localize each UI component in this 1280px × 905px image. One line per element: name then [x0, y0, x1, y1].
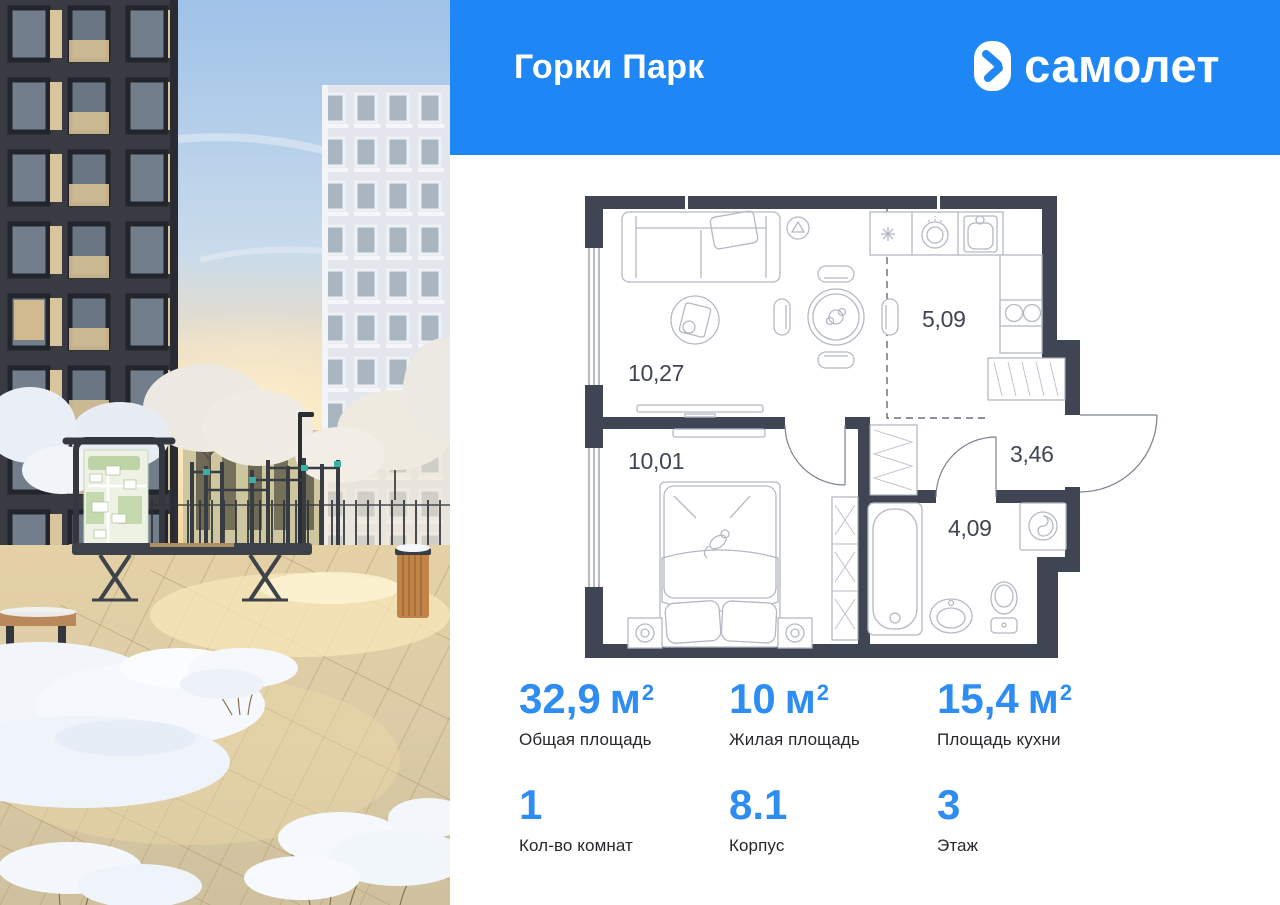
hallway-closet	[870, 425, 917, 495]
stat-value: 3	[937, 782, 1177, 828]
bedroom-door	[785, 425, 845, 485]
stats-grid: 32,9м2 Общая площадь 10м2 Жилая площадь …	[519, 676, 1177, 856]
project-title: Горки Парк	[514, 48, 705, 87]
stat-unit: м2	[785, 675, 828, 722]
room-area-label-living: 10,27	[628, 360, 684, 386]
ceiling-lamp	[787, 217, 809, 239]
stat-living-area: 10м2 Жилая площадь	[729, 676, 937, 750]
entrance-door	[1080, 415, 1157, 492]
stat-label: Жилая площадь	[729, 730, 937, 750]
stat-number: 1	[519, 781, 542, 828]
header: Горки Парк самолет	[450, 0, 1280, 155]
brand-name: самолет	[1024, 41, 1220, 91]
kitchen-counter	[870, 212, 1003, 255]
stat-number: 32,9	[519, 675, 601, 722]
stat-number: 3	[937, 781, 960, 828]
room-area-label-bathroom: 4,09	[948, 515, 992, 541]
room-area-label-hallway: 3,46	[1010, 441, 1054, 467]
nightstand-right	[778, 618, 812, 648]
stat-number: 15,4	[937, 675, 1019, 722]
stat-value: 15,4м2	[937, 676, 1177, 722]
window-bedroom	[585, 448, 603, 587]
stat-total-area: 32,9м2 Общая площадь	[519, 676, 729, 750]
floor-plan: 10,27 5,09 3,46 10,01 4,09	[578, 190, 1168, 670]
room-area-label-bedroom: 10,01	[628, 448, 684, 474]
washbasin	[930, 599, 972, 633]
listing-card: Горки Парк самолет	[0, 0, 1280, 905]
stat-number: 10	[729, 675, 776, 722]
niche-closet	[988, 358, 1065, 400]
bed	[660, 482, 780, 647]
brand-logo: самолет	[974, 41, 1220, 91]
samolet-arrow-icon	[974, 41, 1011, 91]
stat-rooms-count: 1 Кол-во комнат	[519, 782, 729, 856]
stat-number: 8.1	[729, 781, 787, 828]
stat-unit: м2	[610, 675, 653, 722]
sofa	[622, 210, 780, 282]
tv-bedroom	[673, 429, 765, 437]
room-area-label-kitchen: 5,09	[922, 306, 966, 332]
stat-value: 10м2	[729, 676, 937, 722]
window-living	[585, 248, 603, 385]
stat-value: 1	[519, 782, 729, 828]
stat-label: Кол-во комнат	[519, 836, 729, 856]
bathroom-door	[936, 437, 996, 497]
stat-value: 8.1	[729, 782, 937, 828]
rug-coffee-table	[671, 296, 719, 344]
hero-photo	[0, 0, 450, 905]
kitchen-counter-right	[1000, 255, 1042, 353]
dining-table	[774, 266, 898, 368]
nightstand-left	[628, 618, 662, 648]
stat-building: 8.1 Корпус	[729, 782, 937, 856]
stat-value: 32,9м2	[519, 676, 729, 722]
tv-living	[637, 405, 763, 417]
bedroom-wardrobe	[832, 497, 858, 640]
wooden-trash-bin	[395, 544, 431, 618]
floor-plan-drawing: 10,27 5,09 3,46 10,01 4,09	[578, 190, 1168, 670]
stat-kitchen-area: 15,4м2 Площадь кухни	[937, 676, 1177, 750]
stat-floor: 3 Этаж	[937, 782, 1177, 856]
washing-machine	[1020, 503, 1066, 550]
info-panel: Горки Парк самолет	[450, 0, 1280, 905]
toilet	[991, 582, 1017, 633]
stat-unit: м2	[1028, 675, 1071, 722]
stat-label: Площадь кухни	[937, 730, 1177, 750]
stat-label: Этаж	[937, 836, 1177, 856]
winter-courtyard-scene	[0, 0, 450, 905]
bathtub	[868, 503, 922, 635]
stat-label: Общая площадь	[519, 730, 729, 750]
stat-label: Корпус	[729, 836, 937, 856]
